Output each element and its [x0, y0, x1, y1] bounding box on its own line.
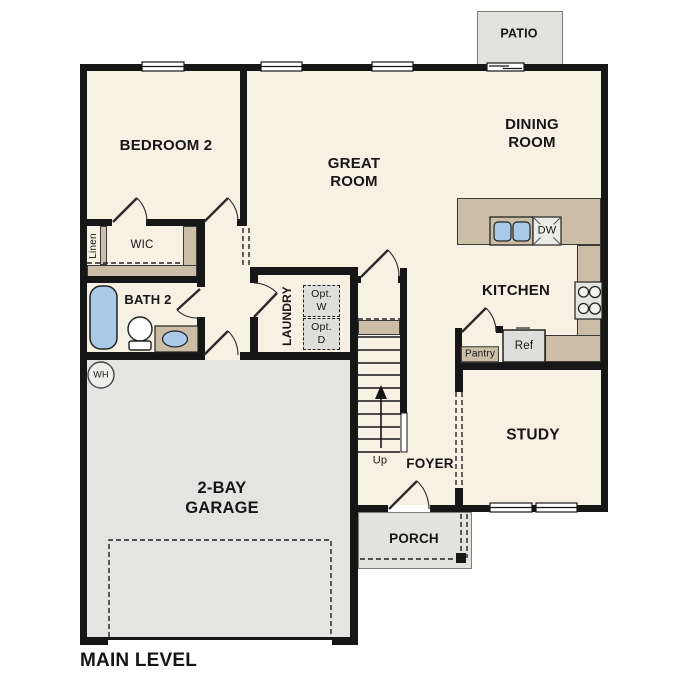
- label-dishwasher: DW: [537, 224, 558, 237]
- room-label-patio: PATIO: [500, 27, 537, 42]
- room-label-great: GREAT ROOM: [328, 155, 380, 191]
- wall-hall-left-upper: [197, 219, 205, 287]
- room-label-bath2: BATH 2: [124, 292, 171, 308]
- wall-stair-closet-right: [398, 276, 407, 283]
- wall-pantry-stub: [496, 326, 503, 333]
- porch-post: [456, 553, 466, 563]
- room-label-garage: 2-BAY GARAGE: [185, 479, 259, 519]
- kitchen-base-counter: [545, 335, 601, 362]
- wall-front-4: [577, 505, 608, 512]
- room-label-dining: DINING ROOM: [505, 116, 559, 152]
- label-refrigerator: Ref: [515, 340, 534, 354]
- label-pantry: Pantry: [461, 346, 499, 362]
- room-label-wic: WIC: [131, 239, 154, 253]
- room-label-kitchen: KITCHEN: [482, 282, 550, 300]
- wall-laundry-left-lower: [250, 317, 258, 360]
- wall-kitchen-study: [455, 362, 608, 370]
- label-stairs-up: Up: [373, 454, 387, 467]
- wall-front-2: [430, 505, 490, 512]
- label-water-heater: WH: [93, 370, 108, 381]
- wall-top: [81, 64, 608, 71]
- wall-study-left-lower: [455, 488, 463, 505]
- wall-stairs-right: [400, 268, 407, 415]
- label-opt-dryer: Opt. D: [311, 321, 332, 347]
- wall-garage-bottom-left: [80, 637, 108, 645]
- wall-study-left-upper: [455, 362, 463, 392]
- wall-laundry-top: [250, 267, 358, 275]
- wall-bedroom-bottom-1: [80, 219, 112, 226]
- wall-bedroom-bottom-2: [146, 219, 202, 226]
- wall-garage-right: [350, 267, 358, 645]
- wall-bedroom-bottom-3: [237, 219, 247, 226]
- room-label-foyer: FOYER: [406, 456, 454, 472]
- floor-plan: PATIO DINING ROOM GREAT ROOM BEDROOM 2 K…: [0, 0, 687, 687]
- stair-landing: [358, 320, 400, 335]
- garage-door-sill: [108, 637, 332, 640]
- wall-front-3: [531, 505, 537, 512]
- plan-title: MAIN LEVEL: [80, 650, 197, 673]
- wall-garage-top-1: [80, 352, 202, 360]
- room-label-linen: Linen: [88, 233, 100, 258]
- room-label-bedroom2: BEDROOM 2: [120, 137, 213, 155]
- room-label-porch: PORCH: [389, 531, 439, 547]
- kitchen-island-counter: [457, 198, 601, 245]
- wall-front-1: [352, 505, 388, 512]
- wall-wic-bottom: [80, 276, 205, 283]
- wall-stair-closet-left: [352, 276, 361, 283]
- room-label-study: STUDY: [506, 427, 560, 446]
- wall-laundry-left-upper: [250, 267, 258, 283]
- wall-right: [601, 64, 608, 512]
- room-label-laundry: LAUNDRY: [280, 286, 294, 346]
- wic-shelf-left: [100, 226, 107, 265]
- label-opt-washer: Opt. W: [311, 288, 332, 314]
- wall-bedroom-right: [240, 64, 247, 226]
- wall-garage-bottom-right: [332, 637, 358, 645]
